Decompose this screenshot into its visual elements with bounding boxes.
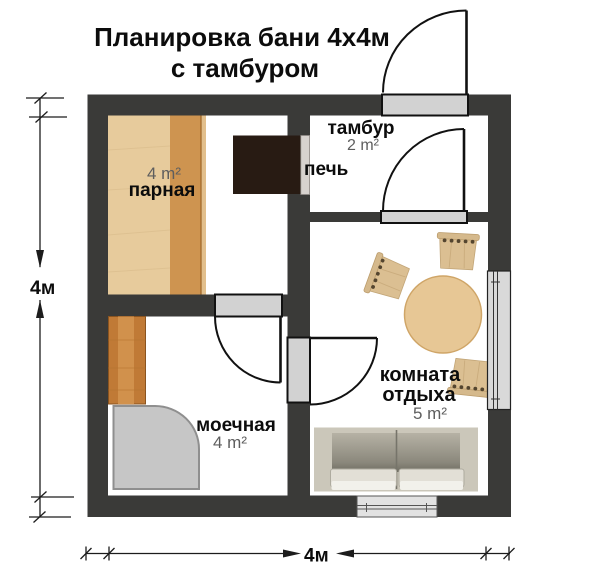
svg-text:парная: парная: [129, 180, 196, 201]
svg-text:отдыха: отдыха: [382, 384, 456, 406]
svg-text:4м: 4м: [304, 546, 329, 567]
svg-text:комната: комната: [380, 364, 461, 386]
svg-text:с тамбуром: с тамбуром: [171, 53, 319, 83]
svg-text:2 m²: 2 m²: [347, 137, 380, 154]
svg-text:5 m²: 5 m²: [413, 404, 447, 423]
svg-text:4м: 4м: [30, 277, 55, 299]
svg-text:Планировка бани 4х4м: Планировка бани 4х4м: [94, 22, 390, 52]
svg-text:печь: печь: [304, 159, 348, 180]
svg-text:тамбур: тамбур: [327, 118, 394, 139]
svg-text:4 m²: 4 m²: [213, 433, 247, 452]
